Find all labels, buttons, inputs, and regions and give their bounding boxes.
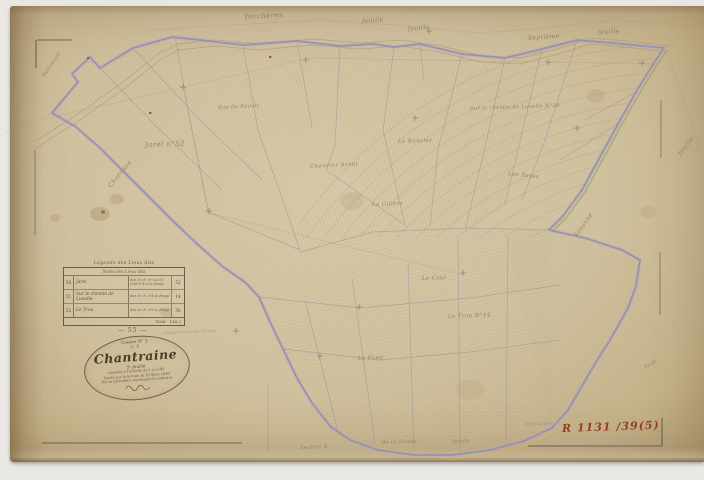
- legend-cell-num: 51: [64, 290, 74, 303]
- legend-table: Légende des Lieux dits Noms des Lieux di…: [63, 261, 185, 326]
- legend-cell-name: Le Trou: [74, 304, 129, 317]
- legend-header: Noms des Lieux dits: [64, 268, 184, 276]
- legend-title: Légende des Lieux dits: [63, 261, 185, 266]
- legend-total: Total 150,2: [64, 317, 184, 325]
- cartouche-section: C. 5: [130, 344, 139, 350]
- legend-cell-num: 52: [64, 304, 74, 317]
- legend-rows: 50Jareldep. le ch. n°9 au ch. rural n°4 …: [64, 276, 184, 317]
- sheet-number: — 55 —: [118, 327, 147, 334]
- legend-row: 52Le Troudep. le ch. n°9 au finage50: [64, 303, 184, 317]
- legend-cell-area: 52: [172, 280, 184, 285]
- legend-cell-area: 50: [172, 308, 184, 313]
- legend-total-value: 150,2: [170, 319, 181, 324]
- legend-grid: Noms des Lieux dits 50Jareldep. le ch. n…: [63, 267, 185, 326]
- cartouche-text: Canton N° 3 C. 5 Chantraine 5ᵉ feuille d…: [84, 336, 187, 394]
- legend-cell-details: dep. le ch. n°9 au finage: [129, 304, 172, 317]
- field-hatching: [52, 30, 704, 480]
- legend-total-label: Total: [156, 319, 166, 324]
- legend-row: 51Sur le chemin de Lunelledep. le ch. n°…: [64, 289, 184, 303]
- legend-cell-details: dep. le ch. n°9 au ch. rural n°4 et le f…: [129, 276, 172, 289]
- scanned-cadastral-map: TorchèresfeuillefeuilleSeptièmefeuillefe…: [0, 0, 704, 480]
- legend-cell-num: 50: [64, 276, 74, 289]
- legend-cell-name: Sur le chemin de Lunelle: [74, 290, 129, 303]
- legend-cell-area: 14: [172, 294, 184, 299]
- legend-cell-details: dep. le ch. n°4 au finage: [129, 290, 172, 303]
- cadastral-map-drawing: [0, 0, 704, 480]
- legend-cell-name: Jarel: [74, 276, 129, 289]
- title-cartouche: — 55 — Département des Vosges Canton N° …: [84, 336, 190, 400]
- legend-row: 50Jareldep. le ch. n°9 au ch. rural n°4 …: [64, 276, 184, 289]
